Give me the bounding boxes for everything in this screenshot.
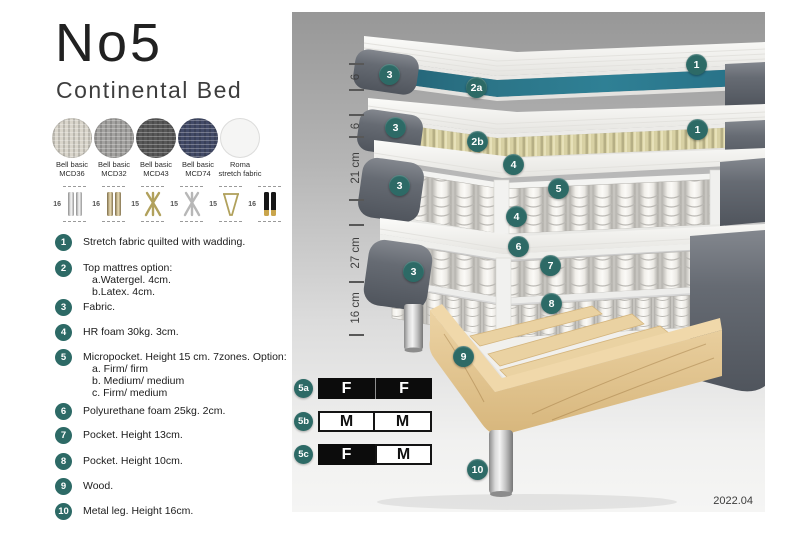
list-item: 7 Pocket. Height 13cm. [55, 427, 291, 444]
callout-badge: 1 [687, 119, 708, 140]
list-item: 5 Micropocket. Height 15 cm. 7zones. Opt… [55, 349, 291, 399]
list-item-text: Metal leg. Height 16cm. [83, 503, 193, 520]
list-item-number: 10 [55, 503, 72, 520]
list-item-text: Top mattres option: a.Watergel. 4cm. b.L… [83, 260, 172, 298]
cylinder-brass-leg-icon [102, 186, 125, 222]
splayed-silver-leg-icon [180, 186, 203, 222]
list-item-number: 9 [55, 478, 72, 495]
cylinder-silver-leg-icon [63, 186, 86, 222]
page: No5 Continental Bed Bell basicMCD36 Bell… [0, 0, 800, 533]
leg-options: 16 16 15 15 15 16 [51, 186, 281, 222]
list-item: 2 Top mattres option: a.Watergel. 4cm. b… [55, 260, 291, 298]
firmness-row-badge: 5a [294, 379, 313, 398]
callout-badge: 4 [503, 154, 524, 175]
callout-badge: 3 [385, 117, 406, 138]
fabric-swatch: Bell basicMCD36 [52, 118, 92, 178]
bed-diagram-panel: 6 6 21 cm 27 cm 16 cm 3 2a 1 3 2b 1 4 5 … [292, 12, 765, 512]
list-item-text: Micropocket. Height 15 cm. 7zones. Optio… [83, 349, 287, 399]
callout-badge: 2b [467, 131, 488, 152]
firmness-cell: M [375, 411, 432, 432]
firmness-row-5b: 5b M M [294, 411, 432, 432]
firmness-row-5c: 5c F M [294, 444, 432, 465]
list-item-text: Pocket. Height 10cm. [83, 453, 183, 470]
list-item-text: Pocket. Height 13cm. [83, 427, 183, 444]
callout-badge: 3 [389, 175, 410, 196]
firmness-cell: F [318, 444, 375, 465]
version-label: 2022.04 [713, 495, 753, 507]
list-item-text: Fabric. [83, 299, 115, 316]
list-item-text: Stretch fabric quilted with wadding. [83, 234, 245, 251]
fabric-swatch-circle [220, 118, 260, 158]
leg-option: 15 [168, 186, 203, 222]
list-item-number: 3 [55, 299, 72, 316]
firmness-bar: M M [318, 411, 432, 432]
firmness-cell: M [318, 411, 375, 432]
callout-badge: 7 [540, 255, 561, 276]
callout-badge: 3 [403, 261, 424, 282]
list-item: 4 HR foam 30kg. 3cm. [55, 324, 291, 341]
page-subtitle: Continental Bed [56, 77, 242, 104]
fabric-swatch: Bell basicMCD32 [94, 118, 134, 178]
list-item: 8 Pocket. Height 10cm. [55, 453, 291, 470]
ruler-label: 21 cm [349, 138, 363, 198]
callout-badge: 5 [548, 178, 569, 199]
list-item: 9 Wood. [55, 478, 291, 495]
callout-badge: 9 [453, 346, 474, 367]
leg-height-label: 15 [129, 201, 139, 208]
fabric-swatches: Bell basicMCD36 Bell basicMCD32 Bell bas… [52, 118, 260, 178]
list-item: 3 Fabric. [55, 299, 291, 316]
fabric-swatch-label: Bell basicMCD36 [56, 161, 88, 178]
materials-list: 1 Stretch fabric quilted with wadding. 2… [55, 234, 291, 520]
front-metal-leg [489, 430, 513, 497]
ruler-label: 27 cm [349, 223, 363, 283]
firmness-bar: F F [318, 378, 432, 399]
firmness-cell: M [375, 444, 432, 465]
fabric-swatch-circle [52, 118, 92, 158]
leg-option: 16 [90, 186, 125, 222]
list-item-number: 8 [55, 453, 72, 470]
fabric-swatch-label: Bell basicMCD43 [140, 161, 172, 178]
list-item-number: 5 [55, 349, 72, 366]
callout-badge: 4 [506, 206, 527, 227]
ruler-label: 16 cm [349, 278, 363, 338]
ruler-tick [349, 199, 364, 201]
callout-badge: 6 [508, 236, 529, 257]
left-metal-leg [404, 304, 423, 353]
list-item: 6 Polyurethane foam 25kg. 2cm. [55, 403, 291, 420]
callout-badge: 8 [541, 293, 562, 314]
list-item-number: 4 [55, 324, 72, 341]
fabric-swatch-label: Romastretch fabric [219, 161, 262, 178]
fabric-swatch-label: Bell basicMCD74 [182, 161, 214, 178]
fabric-swatch: Bell basicMCD43 [136, 118, 176, 178]
page-title: No5 [55, 16, 163, 70]
leg-option: 15 [207, 186, 242, 222]
list-item-number: 7 [55, 427, 72, 444]
list-item-number: 2 [55, 260, 72, 277]
list-item-text: Polyurethane foam 25kg. 2cm. [83, 403, 225, 420]
firmness-cell: F [375, 378, 432, 399]
splayed-gold-leg-icon [141, 186, 164, 222]
floor-shadow [377, 494, 677, 510]
leg-option: 15 [129, 186, 164, 222]
list-item-number: 1 [55, 234, 72, 251]
fabric-swatch-circle [136, 118, 176, 158]
leg-height-label: 16 [246, 201, 256, 208]
fabric-swatch: Romastretch fabric [220, 118, 260, 178]
callout-badge: 10 [467, 459, 488, 480]
fabric-swatch: Bell basicMCD74 [178, 118, 218, 178]
firmness-bar: F M [318, 444, 432, 465]
leg-option: 16 [51, 186, 86, 222]
hairpin-gold-leg-icon [219, 186, 242, 222]
leg-height-label: 15 [168, 201, 178, 208]
firmness-cell: F [318, 378, 375, 399]
fabric-swatch-circle [178, 118, 218, 158]
leg-height-label: 16 [51, 201, 61, 208]
firmness-row-badge: 5b [294, 412, 313, 431]
fabric-swatch-circle [94, 118, 134, 158]
list-item: 1 Stretch fabric quilted with wadding. [55, 234, 291, 251]
list-item: 10 Metal leg. Height 16cm. [55, 503, 291, 520]
firmness-row-badge: 5c [294, 445, 313, 464]
callout-badge: 3 [379, 64, 400, 85]
leg-option: 16 [246, 186, 281, 222]
firmness-row-5a: 5a F F [294, 378, 432, 399]
leg-height-label: 16 [90, 201, 100, 208]
fabric-swatch-label: Bell basicMCD32 [98, 161, 130, 178]
callout-badge: 1 [686, 54, 707, 75]
list-item-text: Wood. [83, 478, 113, 495]
cylinder-black-gold-leg-icon [258, 186, 281, 222]
list-item-number: 6 [55, 403, 72, 420]
callout-badge: 2a [466, 77, 487, 98]
leg-height-label: 15 [207, 201, 217, 208]
list-item-text: HR foam 30kg. 3cm. [83, 324, 179, 341]
